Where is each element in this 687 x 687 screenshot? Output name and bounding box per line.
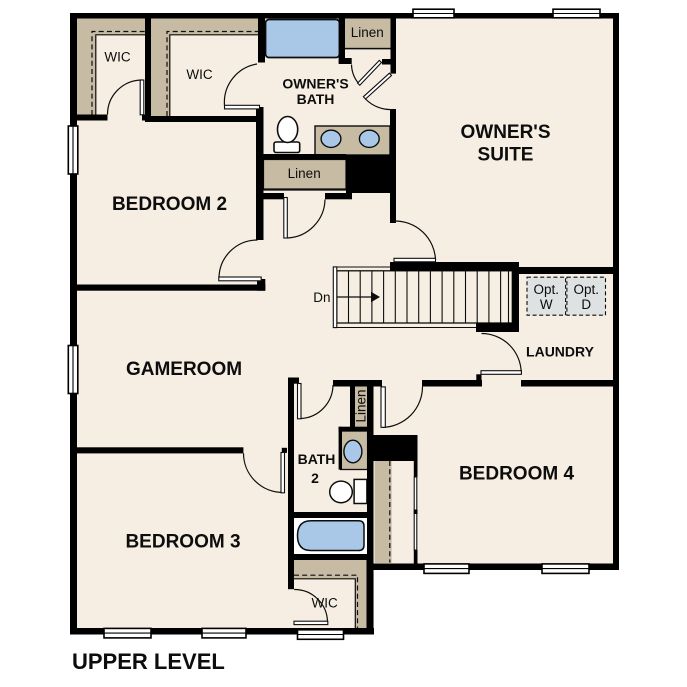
- svg-text:SUITE: SUITE: [478, 145, 534, 166]
- svg-text:WIC: WIC: [186, 67, 212, 82]
- svg-text:OWNER'S: OWNER'S: [282, 76, 348, 92]
- svg-text:Opt.: Opt.: [573, 282, 599, 297]
- svg-text:GAMEROOM: GAMEROOM: [126, 359, 242, 380]
- svg-text:Linen: Linen: [353, 389, 368, 422]
- svg-text:BATH: BATH: [297, 91, 335, 107]
- svg-text:BATH: BATH: [298, 451, 336, 467]
- svg-text:2: 2: [311, 470, 319, 486]
- svg-text:Opt.: Opt.: [534, 282, 560, 297]
- svg-text:Linen: Linen: [351, 25, 384, 40]
- svg-text:Linen: Linen: [288, 166, 321, 181]
- svg-text:WIC: WIC: [104, 49, 130, 64]
- svg-text:W: W: [540, 297, 553, 312]
- svg-text:BEDROOM 3: BEDROOM 3: [125, 532, 240, 553]
- svg-text:UPPER LEVEL: UPPER LEVEL: [72, 649, 225, 674]
- svg-text:D: D: [581, 297, 591, 312]
- svg-text:WIC: WIC: [311, 595, 337, 610]
- svg-text:BEDROOM 2: BEDROOM 2: [112, 194, 227, 215]
- svg-text:LAUNDRY: LAUNDRY: [526, 344, 595, 360]
- svg-text:Dn: Dn: [313, 290, 330, 305]
- svg-text:BEDROOM 4: BEDROOM 4: [459, 464, 575, 485]
- svg-text:OWNER'S: OWNER'S: [460, 122, 550, 143]
